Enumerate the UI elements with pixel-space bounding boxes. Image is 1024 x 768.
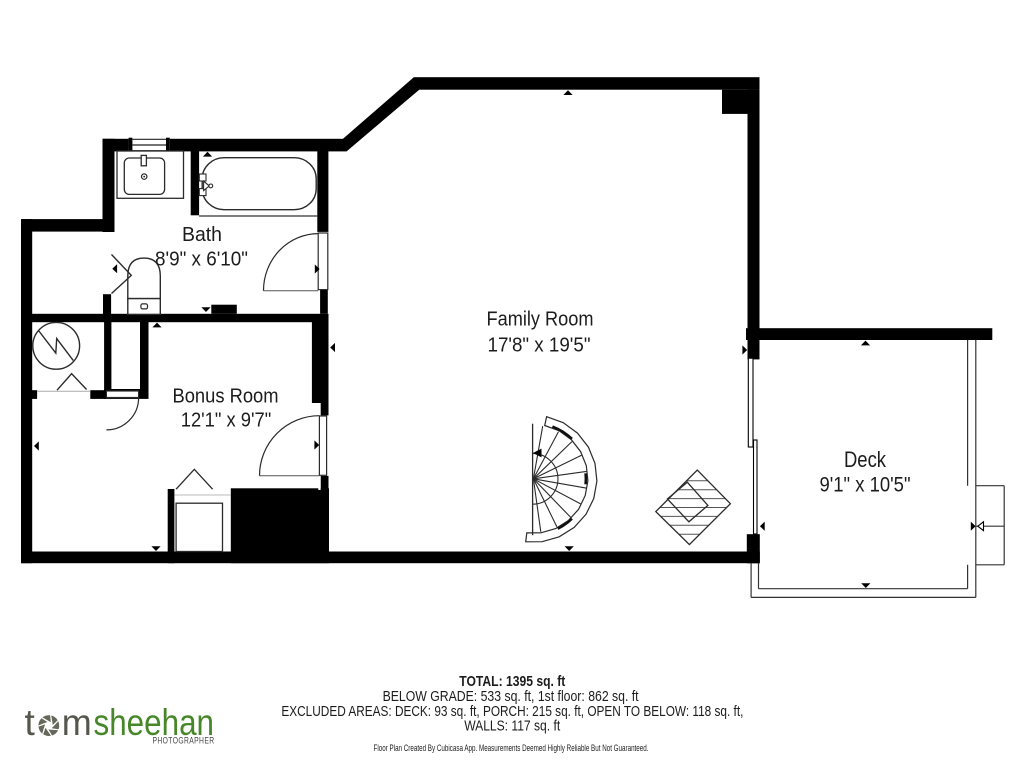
svg-text:PHOTOGRAPHER: PHOTOGRAPHER xyxy=(153,736,215,746)
svg-text:17'8" x 19'5": 17'8" x 19'5" xyxy=(488,335,591,357)
svg-text:Deck: Deck xyxy=(844,447,887,472)
svg-text:Bath: Bath xyxy=(182,224,222,246)
svg-text:9'1" x 10'5": 9'1" x 10'5" xyxy=(820,474,911,497)
svg-text:12'1" x 9'7": 12'1" x 9'7" xyxy=(181,409,272,432)
svg-text:TOTAL: 1395 sq. ft: TOTAL: 1395 sq. ft xyxy=(459,674,565,690)
svg-text:Floor Plan Created By Cubicasa: Floor Plan Created By Cubicasa App. Meas… xyxy=(374,743,649,753)
svg-text:m: m xyxy=(62,702,92,743)
svg-text:Family Room: Family Room xyxy=(487,309,594,331)
svg-text:BELOW GRADE: 533 sq. ft, 1st f: BELOW GRADE: 533 sq. ft, 1st floor: 862 … xyxy=(383,689,639,705)
svg-text:Bonus Room: Bonus Room xyxy=(173,384,279,407)
svg-text:WALLS: 117 sq. ft: WALLS: 117 sq. ft xyxy=(464,719,560,735)
svg-text:8'9" x 6'10": 8'9" x 6'10" xyxy=(155,249,248,271)
svg-text:t: t xyxy=(25,702,36,743)
